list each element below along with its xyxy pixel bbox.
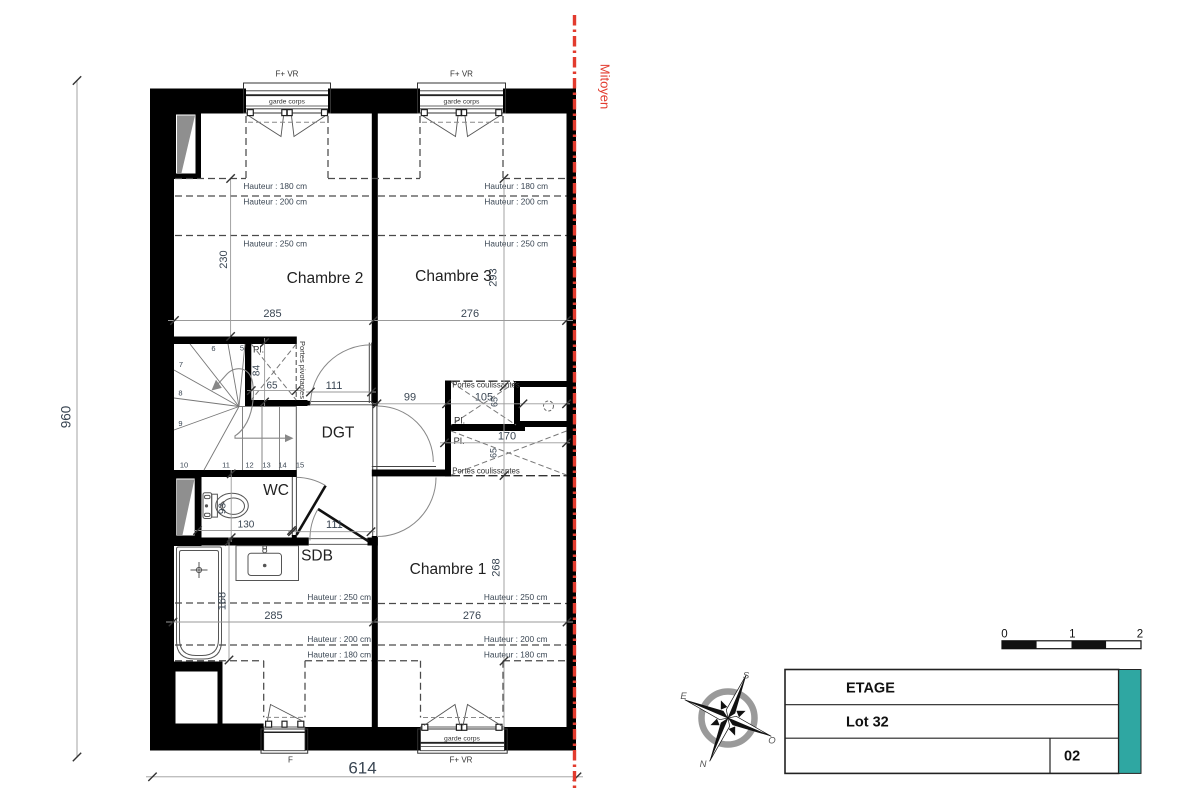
svg-text:garde corps: garde corps — [444, 98, 480, 105]
svg-text:Portes coulissantes: Portes coulissantes — [452, 380, 520, 389]
svg-text:Hauteur : 250 cm: Hauteur : 250 cm — [484, 239, 548, 249]
svg-text:Hauteur : 180 cm: Hauteur : 180 cm — [243, 181, 307, 191]
svg-text:960: 960 — [59, 406, 74, 429]
svg-text:O: O — [768, 736, 776, 747]
svg-text:285: 285 — [263, 308, 281, 320]
svg-text:15: 15 — [296, 461, 304, 470]
svg-text:F: F — [288, 755, 293, 764]
svg-text:12: 12 — [245, 461, 253, 470]
svg-text:130: 130 — [238, 519, 255, 530]
svg-text:5: 5 — [240, 344, 244, 353]
svg-text:02: 02 — [1064, 749, 1080, 765]
svg-text:Lot 32: Lot 32 — [846, 715, 889, 731]
svg-text:11: 11 — [222, 461, 230, 470]
svg-text:E: E — [680, 691, 687, 702]
svg-text:WC: WC — [263, 482, 289, 499]
svg-text:Hauteur : 180 cm: Hauteur : 180 cm — [307, 650, 371, 660]
svg-text:111: 111 — [326, 380, 343, 392]
svg-text:Pl.: Pl. — [253, 345, 264, 356]
svg-text:Hauteur : 200 cm: Hauteur : 200 cm — [307, 634, 371, 644]
svg-text:1: 1 — [1069, 629, 1075, 641]
svg-text:13: 13 — [262, 461, 270, 470]
svg-text:99: 99 — [404, 392, 416, 404]
svg-text:F+ VR: F+ VR — [450, 755, 473, 764]
svg-text:170: 170 — [498, 431, 516, 443]
svg-text:268: 268 — [491, 558, 503, 576]
svg-text:10: 10 — [180, 461, 188, 470]
svg-text:65: 65 — [266, 380, 278, 391]
svg-text:DGT: DGT — [322, 425, 355, 442]
svg-text:230: 230 — [218, 250, 230, 268]
svg-text:84: 84 — [252, 365, 263, 377]
svg-text:14: 14 — [278, 461, 286, 470]
svg-text:276: 276 — [463, 610, 481, 622]
svg-text:garde corps: garde corps — [269, 98, 305, 105]
svg-text:Pl.: Pl. — [454, 416, 465, 427]
svg-text:168: 168 — [217, 592, 229, 610]
svg-text:Portes coulissantes: Portes coulissantes — [452, 467, 520, 476]
svg-text:285: 285 — [264, 610, 282, 622]
svg-text:Pl.: Pl. — [454, 436, 465, 447]
svg-text:S: S — [743, 671, 750, 682]
svg-text:6: 6 — [211, 344, 215, 353]
svg-text:614: 614 — [348, 759, 376, 778]
svg-text:Hauteur : 180 cm: Hauteur : 180 cm — [484, 181, 548, 191]
svg-text:Chambre 2: Chambre 2 — [287, 270, 364, 287]
svg-text:65: 65 — [489, 448, 499, 458]
svg-text:Hauteur : 250 cm: Hauteur : 250 cm — [243, 239, 307, 249]
svg-text:SDB: SDB — [301, 548, 333, 565]
svg-text:7: 7 — [179, 360, 183, 369]
svg-text:0: 0 — [1001, 629, 1007, 641]
svg-text:Chambre 3: Chambre 3 — [415, 268, 492, 285]
svg-text:2: 2 — [1137, 629, 1143, 641]
svg-text:ETAGE: ETAGE — [846, 681, 895, 697]
svg-text:F+ VR: F+ VR — [276, 70, 299, 79]
svg-text:9: 9 — [178, 419, 182, 428]
svg-text:N: N — [700, 759, 707, 770]
svg-text:Hauteur : 200 cm: Hauteur : 200 cm — [484, 197, 548, 207]
svg-text:65: 65 — [490, 397, 500, 407]
svg-text:8: 8 — [178, 389, 182, 398]
svg-text:Mitoyen: Mitoyen — [598, 64, 613, 110]
svg-text:F+ VR: F+ VR — [450, 70, 473, 79]
svg-text:Chambre 1: Chambre 1 — [410, 561, 487, 578]
svg-text:Hauteur : 200 cm: Hauteur : 200 cm — [243, 197, 307, 207]
svg-text:Hauteur : 250 cm: Hauteur : 250 cm — [307, 592, 371, 602]
svg-text:93: 93 — [218, 503, 229, 515]
svg-text:Hauteur : 200 cm: Hauteur : 200 cm — [484, 634, 548, 644]
svg-text:Hauteur : 250 cm: Hauteur : 250 cm — [484, 592, 548, 602]
svg-text:garde corps: garde corps — [444, 735, 480, 742]
svg-text:111: 111 — [326, 519, 343, 531]
svg-text:Hauteur : 180 cm: Hauteur : 180 cm — [484, 650, 548, 660]
svg-text:276: 276 — [461, 308, 479, 320]
